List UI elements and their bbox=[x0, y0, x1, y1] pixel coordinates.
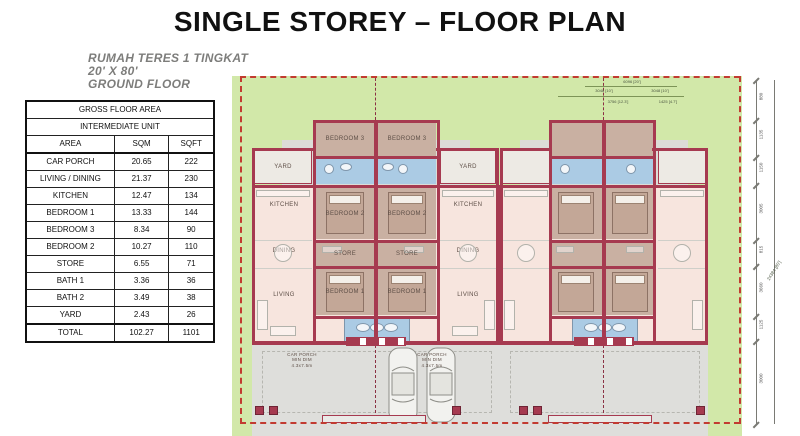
dining-table-icon bbox=[673, 244, 691, 262]
plan-heading-line2: 20' X 80' bbox=[88, 65, 248, 78]
gate-post bbox=[255, 406, 264, 415]
dim-label: 3005 bbox=[759, 194, 764, 224]
cell-sqm: 8.34 bbox=[114, 222, 169, 239]
shelf-icon bbox=[556, 246, 574, 253]
dining-table-icon bbox=[517, 244, 535, 262]
entry-step bbox=[574, 337, 634, 346]
room-label-living: LIVING bbox=[440, 292, 496, 298]
cell-sqm: 21.37 bbox=[114, 171, 169, 188]
wall bbox=[313, 316, 440, 319]
wall bbox=[602, 120, 606, 344]
washbasin-icon bbox=[612, 323, 626, 332]
dimension-line bbox=[585, 86, 677, 87]
table-row: CAR PORCH20.65222 bbox=[26, 153, 214, 171]
dimension-chain bbox=[756, 80, 757, 424]
total-sqm: 102.27 bbox=[114, 324, 169, 342]
plan-heading-line1: RUMAH TERES 1 TINGKAT bbox=[88, 52, 248, 65]
wall bbox=[313, 120, 440, 123]
pillow-icon bbox=[561, 195, 591, 204]
dim-label: 3000 bbox=[759, 364, 764, 394]
partition-line bbox=[440, 240, 496, 241]
table-row: KITCHEN12.47134 bbox=[26, 188, 214, 205]
sink-icon bbox=[340, 163, 352, 171]
car-porch-line: 4.3x7.5m bbox=[400, 363, 464, 368]
cell-sqm: 12.47 bbox=[114, 188, 169, 205]
dim-label: 1135 bbox=[759, 120, 764, 150]
partition-line bbox=[658, 268, 706, 269]
room-bedroom3 bbox=[552, 122, 602, 156]
room-label-kitchen: KITCHEN bbox=[256, 202, 312, 208]
wall bbox=[705, 148, 708, 344]
wall bbox=[437, 120, 440, 344]
cell-area: BATH 2 bbox=[26, 290, 114, 307]
cell-sqm: 20.65 bbox=[114, 153, 169, 171]
cell-sqft: 38 bbox=[169, 290, 214, 307]
room-label: YARD bbox=[274, 164, 291, 170]
cell-area: STORE bbox=[26, 256, 114, 273]
wall bbox=[252, 148, 255, 344]
wall bbox=[500, 148, 552, 151]
col-header-sqft: SQFT bbox=[169, 136, 214, 154]
sofa-icon bbox=[504, 300, 515, 330]
pillow-icon bbox=[391, 275, 423, 284]
wall bbox=[313, 156, 440, 159]
boundary-line-bottom bbox=[240, 422, 740, 424]
car-porch-label: CAR PORCH MIN DIM 4.3x7.5m bbox=[270, 352, 334, 368]
room-label: BEDROOM 1 bbox=[326, 289, 365, 295]
table-total-row: TOTAL 102.27 1101 bbox=[26, 324, 214, 342]
bed-icon bbox=[612, 272, 648, 312]
wall bbox=[436, 148, 499, 151]
room-label: YARD bbox=[459, 164, 476, 170]
boundary-line-right bbox=[739, 76, 741, 424]
party-line bbox=[375, 345, 376, 423]
room-label: BEDROOM 2 bbox=[388, 211, 427, 217]
kitchen-counter-icon bbox=[442, 190, 494, 197]
wall bbox=[549, 240, 656, 243]
sofa-icon bbox=[484, 300, 495, 330]
table-row: BATH 23.4938 bbox=[26, 290, 214, 307]
table-subtitle: INTERMEDIATE UNIT bbox=[26, 119, 214, 136]
partition-line bbox=[502, 268, 550, 269]
cell-sqm: 10.27 bbox=[114, 239, 169, 256]
cell-sqm: 3.49 bbox=[114, 290, 169, 307]
boundary-line-left bbox=[240, 76, 242, 424]
partition-line bbox=[254, 268, 312, 269]
sink-icon bbox=[382, 163, 394, 171]
cell-area: YARD bbox=[26, 307, 114, 325]
table-header-row: AREA SQM SQFT bbox=[26, 136, 214, 154]
car-porch-label: CAR PORCH MIN DIM 4.3x7.5m bbox=[400, 352, 464, 368]
room-yard bbox=[502, 150, 550, 184]
partition-line bbox=[440, 268, 496, 269]
dimension-chain bbox=[774, 80, 775, 424]
wall bbox=[549, 316, 656, 319]
pillow-icon bbox=[329, 195, 361, 204]
plan-heading-line3: GROUND FLOOR bbox=[88, 78, 248, 91]
bed-icon bbox=[558, 272, 594, 312]
dim-label: 1150 bbox=[759, 153, 764, 183]
cell-area: BEDROOM 2 bbox=[26, 239, 114, 256]
pillow-icon bbox=[329, 275, 361, 284]
room-label: STORE bbox=[396, 251, 418, 257]
col-header-area: AREA bbox=[26, 136, 114, 154]
bed-icon bbox=[612, 192, 648, 234]
partition-line bbox=[502, 240, 550, 241]
kitchen-counter-icon bbox=[504, 190, 548, 197]
cell-sqm: 13.33 bbox=[114, 205, 169, 222]
pillow-icon bbox=[615, 275, 645, 284]
table-title-row: GROSS FLOOR AREA bbox=[26, 101, 214, 119]
gate-post bbox=[696, 406, 705, 415]
sofa-icon bbox=[692, 300, 703, 330]
cell-sqft: 71 bbox=[169, 256, 214, 273]
dim-tick bbox=[753, 421, 760, 428]
cell-sqm: 6.55 bbox=[114, 256, 169, 273]
room-yard: YARD bbox=[254, 150, 312, 184]
toilet-icon bbox=[560, 164, 570, 174]
table-row: BATH 13.3636 bbox=[26, 273, 214, 290]
room-bedroom3: BEDROOM 3 bbox=[378, 122, 436, 156]
room-label-living: LIVING bbox=[256, 292, 312, 298]
table-row: STORE6.5571 bbox=[26, 256, 214, 273]
toilet-icon bbox=[626, 164, 636, 174]
car-porch-line: 4.3x7.5m bbox=[270, 363, 334, 368]
wall bbox=[500, 148, 503, 344]
boundary-line-top bbox=[240, 76, 740, 78]
cell-sqft: 230 bbox=[169, 171, 214, 188]
room-yard bbox=[658, 150, 706, 184]
wall bbox=[374, 120, 378, 344]
gate-post bbox=[269, 406, 278, 415]
dim-label: 1125 bbox=[759, 310, 764, 340]
cell-area: KITCHEN bbox=[26, 188, 114, 205]
room-label: BEDROOM 3 bbox=[388, 136, 427, 142]
gate-post bbox=[533, 406, 542, 415]
room-bedroom3 bbox=[606, 122, 656, 156]
table-row: BEDROOM 38.3490 bbox=[26, 222, 214, 239]
table-row: BEDROOM 210.27110 bbox=[26, 239, 214, 256]
party-line bbox=[603, 345, 604, 423]
table-row: LIVING / DINING21.37230 bbox=[26, 171, 214, 188]
wall bbox=[313, 266, 440, 269]
pillow-icon bbox=[615, 195, 645, 204]
cell-sqft: 26 bbox=[169, 307, 214, 325]
cell-area: CAR PORCH bbox=[26, 153, 114, 171]
room-label-kitchen: KITCHEN bbox=[440, 202, 496, 208]
wall bbox=[652, 148, 708, 151]
room-label: BEDROOM 2 bbox=[326, 211, 365, 217]
dining-table-icon bbox=[274, 244, 292, 262]
total-label: TOTAL bbox=[26, 324, 114, 342]
cell-area: BEDROOM 1 bbox=[26, 205, 114, 222]
wall bbox=[549, 156, 656, 159]
wall bbox=[313, 240, 440, 243]
kitchen-counter-icon bbox=[660, 190, 704, 197]
dim-label: 815 bbox=[759, 235, 764, 265]
washbasin-icon bbox=[356, 323, 370, 332]
wall bbox=[549, 120, 656, 123]
cell-sqm: 2.43 bbox=[114, 307, 169, 325]
col-header-sqm: SQM bbox=[114, 136, 169, 154]
dim-label: 6096 [20'] bbox=[612, 79, 652, 84]
bed-icon bbox=[558, 192, 594, 234]
dim-label: 1425 [4.7'] bbox=[648, 99, 688, 104]
cell-area: LIVING / DINING bbox=[26, 171, 114, 188]
gross-floor-area-table: GROSS FLOOR AREA INTERMEDIATE UNIT AREA … bbox=[25, 100, 215, 343]
room-bedroom3: BEDROOM 3 bbox=[316, 122, 374, 156]
toilet-icon bbox=[398, 164, 408, 174]
room-yard: YARD bbox=[440, 150, 496, 184]
plan-heading: RUMAH TERES 1 TINGKAT 20' X 80' GROUND F… bbox=[88, 52, 248, 91]
dimension-line bbox=[558, 96, 684, 97]
floor-plan-page: SINGLE STOREY – FLOOR PLAN RUMAH TERES 1… bbox=[0, 0, 800, 436]
room-label: STORE bbox=[334, 251, 356, 257]
cell-sqft: 90 bbox=[169, 222, 214, 239]
table-row: YARD2.4326 bbox=[26, 307, 214, 325]
kitchen-counter-icon bbox=[256, 190, 310, 197]
cell-sqft: 222 bbox=[169, 153, 214, 171]
dim-label: 880 bbox=[759, 82, 764, 112]
sofa-icon bbox=[257, 300, 268, 330]
washbasin-icon bbox=[384, 323, 398, 332]
wall bbox=[549, 120, 552, 344]
table-subtitle-row: INTERMEDIATE UNIT bbox=[26, 119, 214, 136]
cell-sqft: 144 bbox=[169, 205, 214, 222]
sofa-icon bbox=[270, 326, 296, 336]
dim-label: 3048 [10'] bbox=[640, 88, 680, 93]
table-title: GROSS FLOOR AREA bbox=[26, 101, 214, 119]
wall bbox=[653, 120, 656, 344]
pillow-icon bbox=[391, 195, 423, 204]
dim-label: 3756 [12.3'] bbox=[596, 99, 640, 104]
dim-label: 3048 [10'] bbox=[584, 88, 624, 93]
toilet-icon bbox=[324, 164, 334, 174]
dining-table-icon bbox=[459, 244, 477, 262]
page-title: SINGLE STOREY – FLOOR PLAN bbox=[0, 6, 800, 38]
cell-sqft: 110 bbox=[169, 239, 214, 256]
gate-post bbox=[452, 406, 461, 415]
cell-area: BATH 1 bbox=[26, 273, 114, 290]
wall bbox=[252, 148, 316, 151]
cell-area: BEDROOM 3 bbox=[26, 222, 114, 239]
shelf-icon bbox=[626, 246, 644, 253]
wall bbox=[313, 120, 316, 344]
room-label: BEDROOM 3 bbox=[326, 136, 365, 142]
room-label: BEDROOM 1 bbox=[388, 289, 427, 295]
partition-line bbox=[254, 240, 312, 241]
table-row: BEDROOM 113.33144 bbox=[26, 205, 214, 222]
pillow-icon bbox=[561, 275, 591, 284]
wall bbox=[549, 266, 656, 269]
wall bbox=[500, 185, 708, 188]
sofa-icon bbox=[452, 326, 478, 336]
washbasin-icon bbox=[584, 323, 598, 332]
total-sqft: 1101 bbox=[169, 324, 214, 342]
cell-sqft: 134 bbox=[169, 188, 214, 205]
cell-sqm: 3.36 bbox=[114, 273, 169, 290]
partition-line bbox=[658, 240, 706, 241]
cell-sqft: 36 bbox=[169, 273, 214, 290]
porch-marking bbox=[510, 351, 700, 413]
gate-post bbox=[519, 406, 528, 415]
wall bbox=[252, 185, 500, 188]
wall bbox=[496, 148, 499, 344]
party-line bbox=[375, 78, 376, 120]
